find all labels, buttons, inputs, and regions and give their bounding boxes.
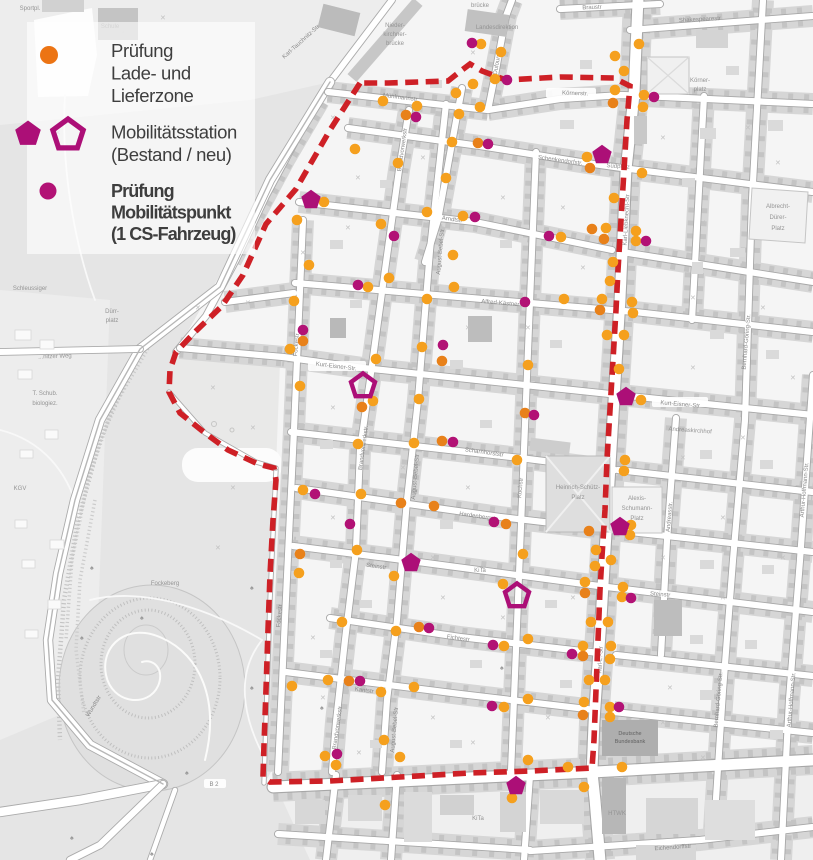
svg-text:✕: ✕ <box>760 305 766 312</box>
svg-text:✕: ✕ <box>690 365 696 372</box>
svg-text:♠: ♠ <box>185 770 189 777</box>
svg-text:✕: ✕ <box>230 485 236 492</box>
svg-text:✕: ✕ <box>500 615 506 622</box>
svg-text:Mobilitätspunkt: Mobilitätspunkt <box>111 203 231 223</box>
svg-text:(Bestand / neu): (Bestand / neu) <box>111 144 232 165</box>
svg-text:brücke: brücke <box>386 41 405 47</box>
svg-text:✕: ✕ <box>330 405 336 412</box>
svg-text:HTWK: HTWK <box>608 811 626 817</box>
svg-text:Lieferzone: Lieferzone <box>111 85 194 106</box>
svg-text:✕: ✕ <box>400 465 406 472</box>
svg-text:Nieder-: Nieder- <box>385 23 405 29</box>
svg-text:KiTa: KiTa <box>474 568 486 574</box>
svg-text:✕: ✕ <box>320 695 326 702</box>
svg-text:✕: ✕ <box>300 250 306 257</box>
svg-text:Braustr: Braustr <box>582 5 602 12</box>
svg-text:✕: ✕ <box>430 555 436 562</box>
svg-text:biologiez.: biologiez. <box>32 401 58 407</box>
svg-text:Landesdirektion: Landesdirektion <box>476 25 518 31</box>
svg-text:KiTa: KiTa <box>472 816 484 822</box>
svg-text:♠: ♠ <box>80 635 84 642</box>
svg-text:✕: ✕ <box>580 265 586 272</box>
svg-text:✕: ✕ <box>660 555 666 562</box>
svg-text:✕: ✕ <box>465 485 471 492</box>
svg-text:✕: ✕ <box>680 455 686 462</box>
svg-text:Sportpl.: Sportpl. <box>20 6 41 12</box>
svg-text:KGV: KGV <box>14 486 27 492</box>
svg-text:Platz: Platz <box>771 226 784 232</box>
svg-text:Dürer-: Dürer- <box>769 215 786 221</box>
svg-text:♠: ♠ <box>250 585 254 592</box>
svg-text:✕: ✕ <box>667 685 673 692</box>
svg-text:Bundesbank: Bundesbank <box>615 739 646 745</box>
svg-text:Prüfung: Prüfung <box>111 40 173 61</box>
svg-text:✕: ✕ <box>356 750 362 757</box>
svg-text:kirchner-: kirchner- <box>383 32 406 38</box>
svg-text:...nitzer Weg: ...nitzer Weg <box>38 353 72 360</box>
svg-text:Schleussiger: Schleussiger <box>13 286 47 292</box>
svg-text:✕: ✕ <box>250 425 256 432</box>
svg-text:Körner-: Körner- <box>690 78 710 84</box>
svg-text:✕: ✕ <box>745 125 751 132</box>
svg-text:✕: ✕ <box>570 595 576 602</box>
svg-text:✕: ✕ <box>215 545 221 552</box>
svg-text:T. Schub.: T. Schub. <box>32 391 57 397</box>
svg-text:✕: ✕ <box>660 135 666 142</box>
svg-text:Fockeberg: Fockeberg <box>151 581 179 587</box>
svg-text:✕: ✕ <box>370 315 376 322</box>
svg-text:✕: ✕ <box>700 755 706 762</box>
svg-text:✕: ✕ <box>740 435 746 442</box>
svg-text:✕: ✕ <box>440 595 446 602</box>
svg-text:Prüfung: Prüfung <box>111 181 174 201</box>
svg-text:✕: ✕ <box>430 715 436 722</box>
svg-text:Platz: Platz <box>571 495 584 501</box>
svg-text:✕: ✕ <box>660 720 666 727</box>
svg-text:Körnerstr.: Körnerstr. <box>562 91 589 98</box>
svg-text:✕: ✕ <box>525 325 531 332</box>
svg-text:Dürr-: Dürr- <box>105 309 119 315</box>
svg-text:Alexis-: Alexis- <box>628 496 646 502</box>
svg-text:✕: ✕ <box>420 155 426 162</box>
svg-text:Schumann-: Schumann- <box>622 506 653 512</box>
svg-text:✕: ✕ <box>500 195 506 202</box>
svg-text:✕: ✕ <box>310 635 316 642</box>
svg-text:platz: platz <box>106 318 119 324</box>
svg-text:platz: platz <box>694 87 707 93</box>
svg-text:♠: ♠ <box>140 615 144 622</box>
svg-text:Albrecht-: Albrecht- <box>766 204 790 210</box>
svg-text:Mobilitätsstation: Mobilitätsstation <box>111 122 237 143</box>
svg-text:♠: ♠ <box>320 705 324 712</box>
svg-text:✕: ✕ <box>560 205 566 212</box>
svg-text:♠: ♠ <box>90 565 94 572</box>
svg-text:✕: ✕ <box>780 555 786 562</box>
svg-text:✕: ✕ <box>700 220 706 227</box>
svg-text:✕: ✕ <box>720 595 726 602</box>
svg-text:♠: ♠ <box>500 665 504 672</box>
svg-text:✕: ✕ <box>545 715 551 722</box>
svg-text:✕: ✕ <box>720 515 726 522</box>
svg-text:✕: ✕ <box>330 515 336 522</box>
svg-text:brücke: brücke <box>471 3 490 9</box>
svg-text:Heinrich-Schütz-: Heinrich-Schütz- <box>556 485 600 491</box>
svg-text:B 2: B 2 <box>209 782 219 788</box>
svg-text:✕: ✕ <box>760 675 766 682</box>
svg-text:✕: ✕ <box>790 375 796 382</box>
svg-text:✕: ✕ <box>470 740 476 747</box>
svg-text:Deutsche: Deutsche <box>618 731 641 737</box>
svg-text:✕: ✕ <box>210 385 216 392</box>
svg-text:✕: ✕ <box>355 175 361 182</box>
svg-text:Lade- und: Lade- und <box>111 63 191 84</box>
svg-text:♠: ♠ <box>70 835 74 842</box>
svg-text:✕: ✕ <box>690 295 696 302</box>
svg-text:✕: ✕ <box>465 325 471 332</box>
svg-text:✕: ✕ <box>160 15 166 22</box>
svg-text:✕: ✕ <box>345 225 351 232</box>
svg-text:✕: ✕ <box>195 305 201 312</box>
svg-text:✕: ✕ <box>245 300 251 307</box>
svg-text:✕: ✕ <box>470 50 476 57</box>
svg-text:(1 CS-Fahrzeug): (1 CS-Fahrzeug) <box>111 224 236 244</box>
svg-text:♠: ♠ <box>150 851 154 858</box>
svg-text:✕: ✕ <box>775 160 781 167</box>
svg-text:♠: ♠ <box>250 685 254 692</box>
